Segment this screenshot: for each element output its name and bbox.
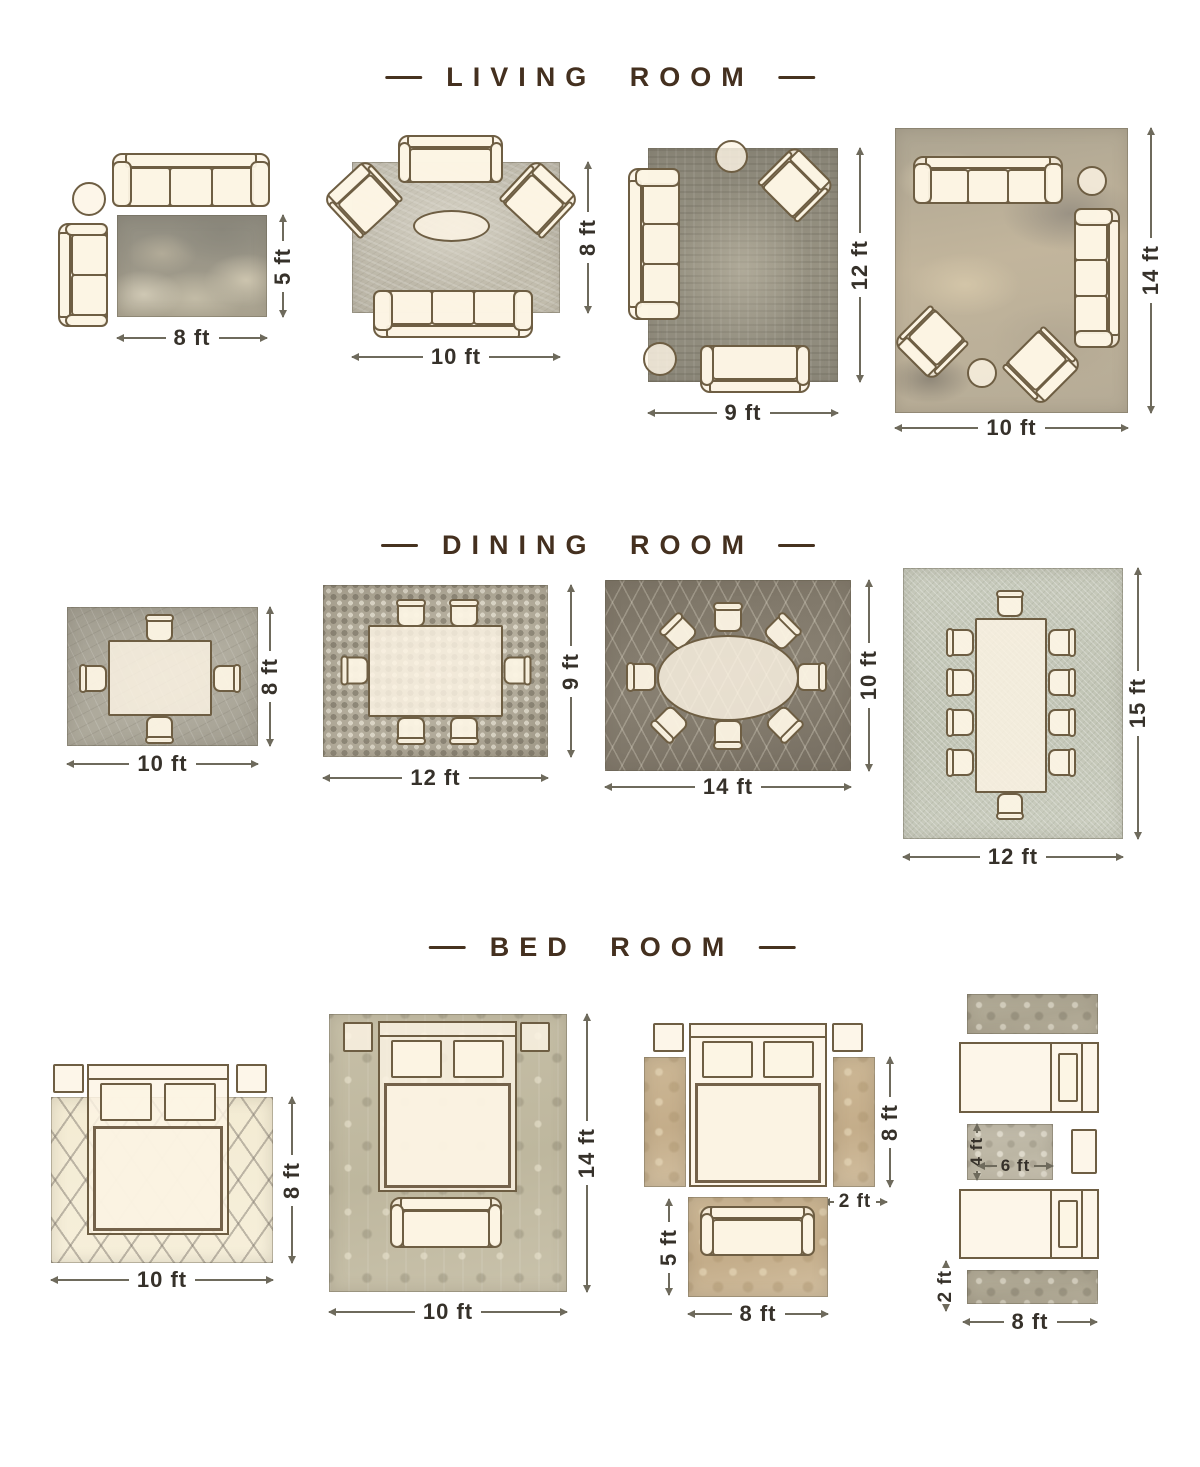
headboard-line [689, 1036, 827, 1038]
dim-label: 14 ft [574, 1121, 600, 1185]
bench [700, 1206, 815, 1256]
dining-chair [146, 617, 173, 642]
dining-chair [997, 593, 1023, 617]
runner-rug [644, 1057, 686, 1187]
dim-label: 8 ft [575, 212, 601, 263]
sofa-cushion [431, 290, 475, 325]
sofa-arm [700, 345, 714, 386]
dim-width: 10 ft [67, 751, 258, 777]
dim-label: 12 ft [402, 765, 468, 791]
dim-foot-rug-width: 8 ft [688, 1301, 828, 1327]
sofa-back [400, 1197, 493, 1211]
dim-foot-rug-height: 5 ft [656, 1199, 682, 1295]
pillow [100, 1083, 152, 1121]
sofa-cushion [1074, 259, 1108, 298]
sofa-cushion [642, 183, 680, 225]
blanket-line [1050, 1189, 1052, 1259]
nightstand [653, 1023, 684, 1052]
sofa-cushion [967, 169, 1008, 204]
dim-height: 5 ft [270, 215, 296, 317]
section-title-bed-room: BED ROOM [429, 932, 796, 963]
sofa-arm [65, 314, 108, 327]
runner-rug [833, 1057, 875, 1187]
dining-chair [450, 602, 478, 627]
loveseat [398, 135, 503, 183]
dim-width: 10 ft [51, 1267, 273, 1293]
dining-chair [1048, 629, 1073, 656]
dim-label: 15 ft [1125, 671, 1151, 735]
bench [390, 1197, 502, 1248]
dining-chair [213, 665, 238, 692]
dining-chair [397, 717, 425, 742]
dim-width: 10 ft [329, 1299, 567, 1325]
sofa-arm [700, 1213, 714, 1256]
bed-double [87, 1064, 229, 1235]
rug [117, 215, 267, 317]
dim-label: 6 ft [997, 1156, 1035, 1176]
sofa-back [628, 180, 642, 307]
dim-width: 12 ft [323, 765, 548, 791]
dining-chair [949, 749, 974, 776]
sofa-cushion [128, 167, 171, 207]
sofa-cushion [712, 1219, 803, 1256]
dining-chair [504, 657, 529, 685]
round-side-table [72, 182, 106, 216]
dim-width: 10 ft [895, 415, 1128, 441]
dining-chair [344, 657, 369, 685]
dim-width: 12 ft [903, 844, 1123, 870]
nightstand [1071, 1129, 1097, 1174]
dim-label: 8 ft [166, 325, 219, 351]
dim-height: 8 ft [279, 1097, 305, 1263]
sofa-cushion [71, 274, 108, 316]
sofa-arm [513, 290, 533, 331]
dim-label: 10 ft [423, 344, 489, 370]
round-side-table [715, 140, 748, 173]
sofa-3seat [913, 156, 1063, 204]
sofa-3seat [628, 168, 680, 320]
sofa-cushion [1007, 169, 1048, 204]
dim-label: 8 ft [732, 1301, 785, 1327]
blanket-line [1050, 1042, 1052, 1113]
sofa-arm [488, 1204, 502, 1248]
oval-coffee-table [413, 210, 490, 242]
dim-label: 14 ft [1138, 238, 1164, 302]
pillow [1058, 1200, 1078, 1249]
dim-label: 10 ft [129, 751, 195, 777]
sofa-arm [65, 223, 108, 236]
loveseat [58, 223, 108, 327]
dim-width: 8 ft [117, 325, 267, 351]
dining-table [108, 640, 212, 716]
nightstand [343, 1022, 373, 1052]
dim-runner-width: 2 ft [933, 1261, 959, 1311]
sofa-back [125, 153, 257, 168]
sofa-cushion [1074, 295, 1108, 334]
dining-chair [949, 669, 974, 696]
dim-height: 10 ft [856, 580, 882, 771]
dim-height: 8 ft [257, 607, 283, 746]
sofa-cushion [473, 290, 517, 325]
dim-height: 8 ft [575, 162, 601, 313]
rug-size-guide: LIVING ROOM 5 ft 8 ft 8 ft 10 ft 12 ft 9… [0, 0, 1200, 1467]
pillow [763, 1041, 814, 1078]
dim-label: 2 ft [834, 1191, 877, 1213]
sofa-3seat [1074, 208, 1120, 348]
bed-double [689, 1023, 827, 1187]
sofa-arm [490, 142, 503, 183]
pillow [453, 1040, 504, 1078]
sofa-arm [913, 163, 932, 204]
sofa-cushion [169, 167, 212, 207]
loveseat [700, 345, 810, 393]
dining-chair [450, 717, 478, 742]
dim-mid-rug-width: 6 ft [978, 1153, 1053, 1179]
runner-rug [967, 994, 1098, 1034]
dim-runner-width: 2 ft [823, 1189, 887, 1215]
sofa-back [386, 325, 520, 338]
twin-bed [959, 1189, 1099, 1259]
sofa-cushion [928, 169, 969, 204]
nightstand [832, 1023, 863, 1052]
blanket [384, 1083, 511, 1188]
dining-chair [714, 606, 742, 632]
sofa-arm [635, 168, 680, 187]
bed-double [378, 1021, 517, 1192]
pillow [391, 1040, 442, 1078]
sofa-arm [112, 161, 132, 208]
sofa-back [925, 156, 1051, 169]
dining-chair [397, 602, 425, 627]
dining-chair [997, 793, 1023, 817]
dining-chair [797, 663, 823, 691]
dim-width: 9 ft [648, 400, 838, 426]
sofa-back [407, 135, 494, 148]
section-title-dining-room: DINING ROOM [381, 530, 815, 561]
dim-label: 14 ft [695, 774, 761, 800]
pillow [1058, 1053, 1078, 1103]
sofa-arm [796, 345, 810, 386]
sofa-arm [1074, 208, 1113, 226]
dining-chair [146, 716, 173, 741]
blanket [695, 1083, 821, 1184]
pillow [702, 1041, 753, 1078]
nightstand [53, 1064, 84, 1093]
nightstand [520, 1022, 550, 1052]
headboard-line [378, 1035, 517, 1037]
headboard-line [1081, 1189, 1083, 1259]
dining-table [368, 625, 503, 717]
dining-chair [1048, 669, 1073, 696]
sofa-back [1108, 220, 1120, 337]
round-side-table [967, 358, 997, 388]
sofa-arm [250, 161, 270, 208]
blanket [93, 1126, 223, 1231]
sofa-cushion [402, 1210, 491, 1248]
sofa-back [709, 380, 800, 393]
sofa-cushion [1074, 222, 1108, 261]
dining-chair [949, 629, 974, 656]
dim-label: 9 ft [558, 646, 584, 697]
dim-height: 14 ft [1138, 128, 1164, 413]
dim-label: 8 ft [1004, 1309, 1057, 1335]
sofa-back [58, 232, 71, 318]
sofa-arm [373, 290, 393, 331]
title-dash-left [381, 544, 418, 547]
dim-label: 8 ft [877, 1097, 903, 1148]
dining-chair [1048, 749, 1073, 776]
oval-dining-table [657, 635, 799, 721]
dim-label: 10 ft [129, 1267, 195, 1293]
dim-width: 10 ft [352, 344, 560, 370]
sofa-arm [1044, 163, 1063, 204]
dim-label: 12 ft [847, 233, 873, 297]
sofa-cushion [642, 223, 680, 265]
dining-chair [949, 709, 974, 736]
section-title-text: LIVING ROOM [446, 62, 754, 93]
dim-label: 8 ft [257, 651, 283, 702]
dim-width: 14 ft [605, 774, 851, 800]
sofa-arm [1074, 330, 1113, 348]
sofa-arm [398, 142, 411, 183]
dim-width: 8 ft [963, 1309, 1097, 1335]
dim-label: 5 ft [656, 1222, 682, 1273]
nightstand [236, 1064, 267, 1093]
sofa-arm [390, 1204, 404, 1248]
sofa-cushion [642, 263, 680, 305]
sofa-3seat [112, 153, 270, 207]
dim-height: 12 ft [847, 148, 873, 382]
title-dash-left [429, 946, 466, 949]
sofa-cushion [712, 345, 799, 380]
dining-chair [1048, 709, 1073, 736]
dim-label: 10 ft [978, 415, 1044, 441]
title-dash-right [778, 76, 815, 79]
dim-label: 9 ft [717, 400, 770, 426]
sofa-cushion [211, 167, 254, 207]
section-title-text: BED ROOM [490, 932, 735, 963]
dim-label: 8 ft [279, 1155, 305, 1206]
twin-bed [959, 1042, 1099, 1113]
dining-table [975, 618, 1047, 793]
dim-label: 10 ft [856, 643, 882, 707]
dim-height: 15 ft [1125, 568, 1151, 839]
dim-label: 12 ft [980, 844, 1046, 870]
round-side-table [1077, 166, 1107, 196]
dining-chair [82, 665, 107, 692]
runner-rug [967, 1270, 1098, 1304]
dining-chair [630, 663, 656, 691]
sofa-back [710, 1206, 805, 1219]
dim-label: 10 ft [415, 1299, 481, 1325]
title-dash-right [758, 946, 795, 949]
sofa-cushion [389, 290, 433, 325]
dim-height: 14 ft [574, 1014, 600, 1292]
section-title-living-room: LIVING ROOM [385, 62, 815, 93]
headboard-line [1081, 1042, 1083, 1113]
title-dash-left [385, 76, 422, 79]
sofa-cushion [409, 148, 492, 183]
section-title-text: DINING ROOM [442, 530, 754, 561]
dining-chair [714, 720, 742, 746]
dim-label: 2 ft [935, 1265, 957, 1308]
round-side-table [643, 342, 677, 376]
sofa-cushion [71, 234, 108, 276]
title-dash-right [778, 544, 815, 547]
dim-label: 5 ft [270, 241, 296, 292]
dim-runner-height: 8 ft [877, 1057, 903, 1187]
sofa-arm [801, 1213, 815, 1256]
headboard-line [87, 1078, 229, 1080]
sofa-arm [635, 301, 680, 320]
dim-height: 9 ft [558, 585, 584, 757]
sofa-3seat [373, 290, 533, 338]
pillow [164, 1083, 216, 1121]
